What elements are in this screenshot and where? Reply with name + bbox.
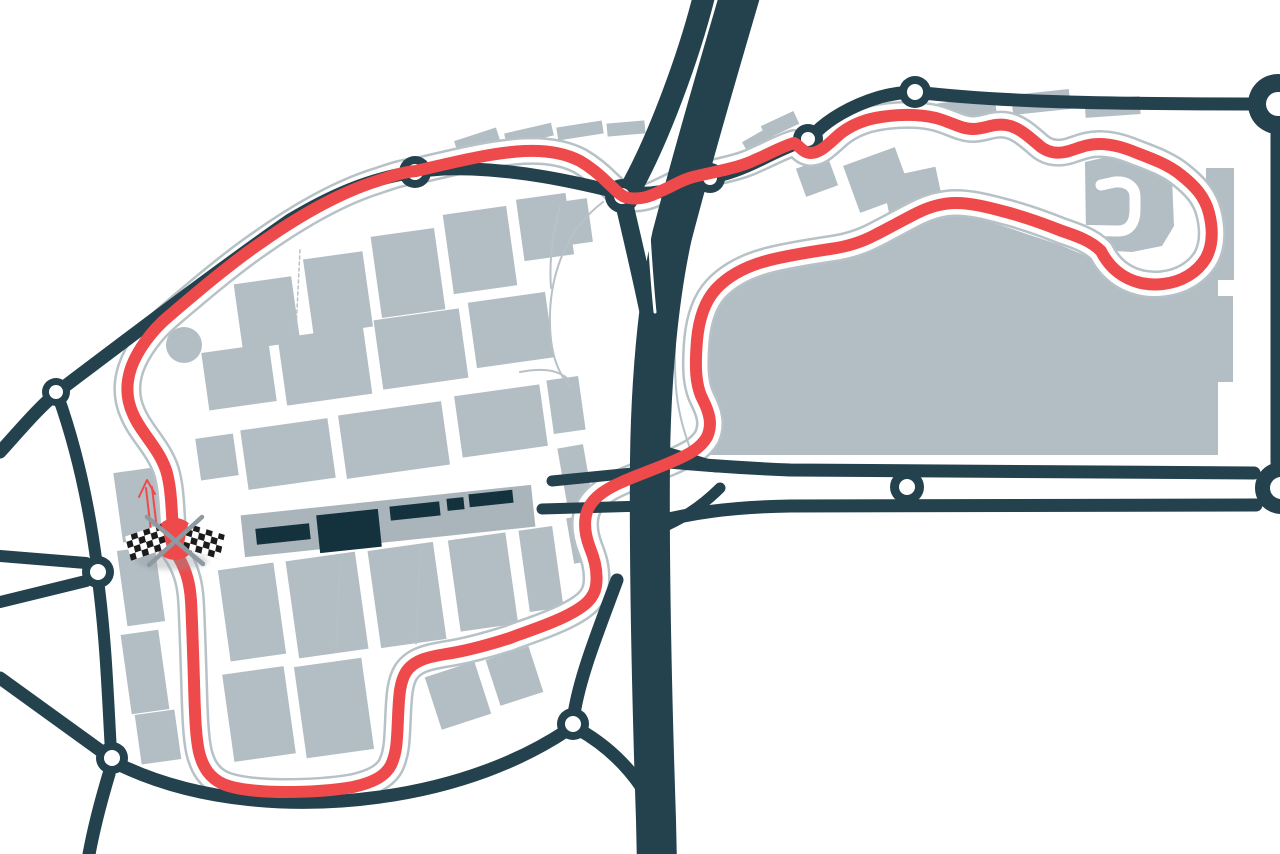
exhibition-hall — [240, 418, 335, 490]
south-dual-carriageway-upper — [658, 461, 1254, 473]
roundabout-center — [104, 750, 120, 766]
north-strip-building — [556, 120, 603, 140]
southwest-exit-road — [87, 774, 109, 854]
exhibition-hall — [374, 308, 469, 389]
roundabout-center — [907, 84, 923, 100]
exhibition-hall — [195, 434, 238, 481]
exhibition-hall — [518, 526, 563, 612]
roundabout — [82, 556, 114, 588]
exhibition-hall — [557, 198, 593, 246]
exhibition-hall — [294, 658, 374, 759]
park-grove — [1201, 296, 1233, 382]
exhibition-hall — [371, 228, 446, 318]
map-layers — [0, 0, 1280, 854]
roundabout — [899, 76, 931, 108]
exhibition-hall — [121, 630, 170, 715]
ring-road-west — [58, 396, 97, 566]
roundabout — [42, 378, 70, 406]
roundabout-center — [90, 564, 106, 580]
roundabout — [557, 708, 589, 740]
exhibition-hall — [218, 563, 286, 662]
central-hall-block — [446, 497, 464, 511]
alley-dashed — [296, 250, 300, 330]
exhibition-hall — [454, 384, 548, 457]
circuit-map — [0, 0, 1280, 854]
exhibition-hall — [278, 326, 373, 405]
exhibition-hall — [338, 401, 450, 479]
exhibition-hall — [425, 661, 491, 729]
exhibition-hall — [546, 376, 585, 434]
exhibition-hall — [201, 344, 276, 411]
south-dual-carriageway-lower — [648, 505, 1256, 524]
roundabout — [890, 470, 924, 504]
exhibition-hall — [448, 532, 518, 631]
exhibition-hall — [443, 206, 518, 294]
southwest-diagonal-road — [0, 678, 101, 751]
exhibition-hall — [468, 292, 554, 368]
roundabout — [96, 742, 128, 774]
ring-road-southwest — [98, 580, 111, 752]
exhibition-hall — [135, 709, 182, 764]
west-road — [0, 581, 86, 602]
roundabout-center — [49, 385, 63, 399]
exhibition-hall — [368, 542, 447, 648]
north-strip-building — [607, 120, 646, 136]
circuit-map-screen — [0, 0, 1280, 854]
exhibition-hall — [286, 552, 369, 659]
north-boundary-road — [915, 92, 1262, 104]
roundabout-center — [565, 716, 581, 732]
roundabout-center — [899, 479, 915, 495]
west-road — [0, 556, 86, 563]
central-hall-block — [316, 509, 382, 553]
roundabout-large — [1248, 74, 1280, 134]
exhibition-hall — [222, 666, 296, 762]
exhibition-hall — [303, 251, 373, 335]
